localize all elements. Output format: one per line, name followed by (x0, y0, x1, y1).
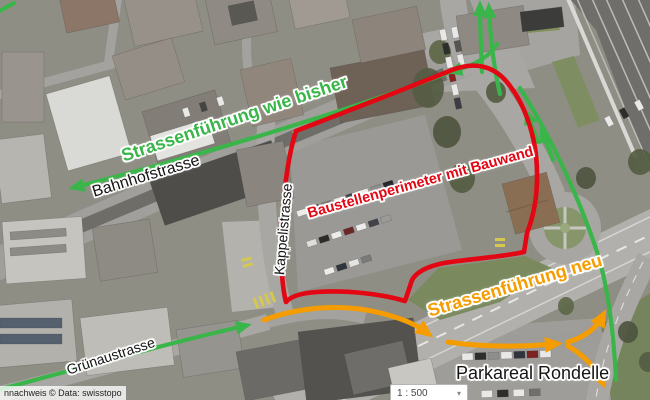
map-canvas[interactable] (0, 0, 650, 400)
chevron-down-icon: ▾ (457, 389, 461, 398)
map-attribution: nnachweis © Data: swisstopo (0, 386, 126, 400)
scale-value: 1 : 500 (397, 388, 428, 399)
map-view: Strassenführung wie bisher Bahnhofstrass… (0, 0, 650, 400)
route-old-line-topleft (0, 3, 14, 13)
scale-select[interactable]: 1 : 500 ▾ (390, 384, 468, 400)
